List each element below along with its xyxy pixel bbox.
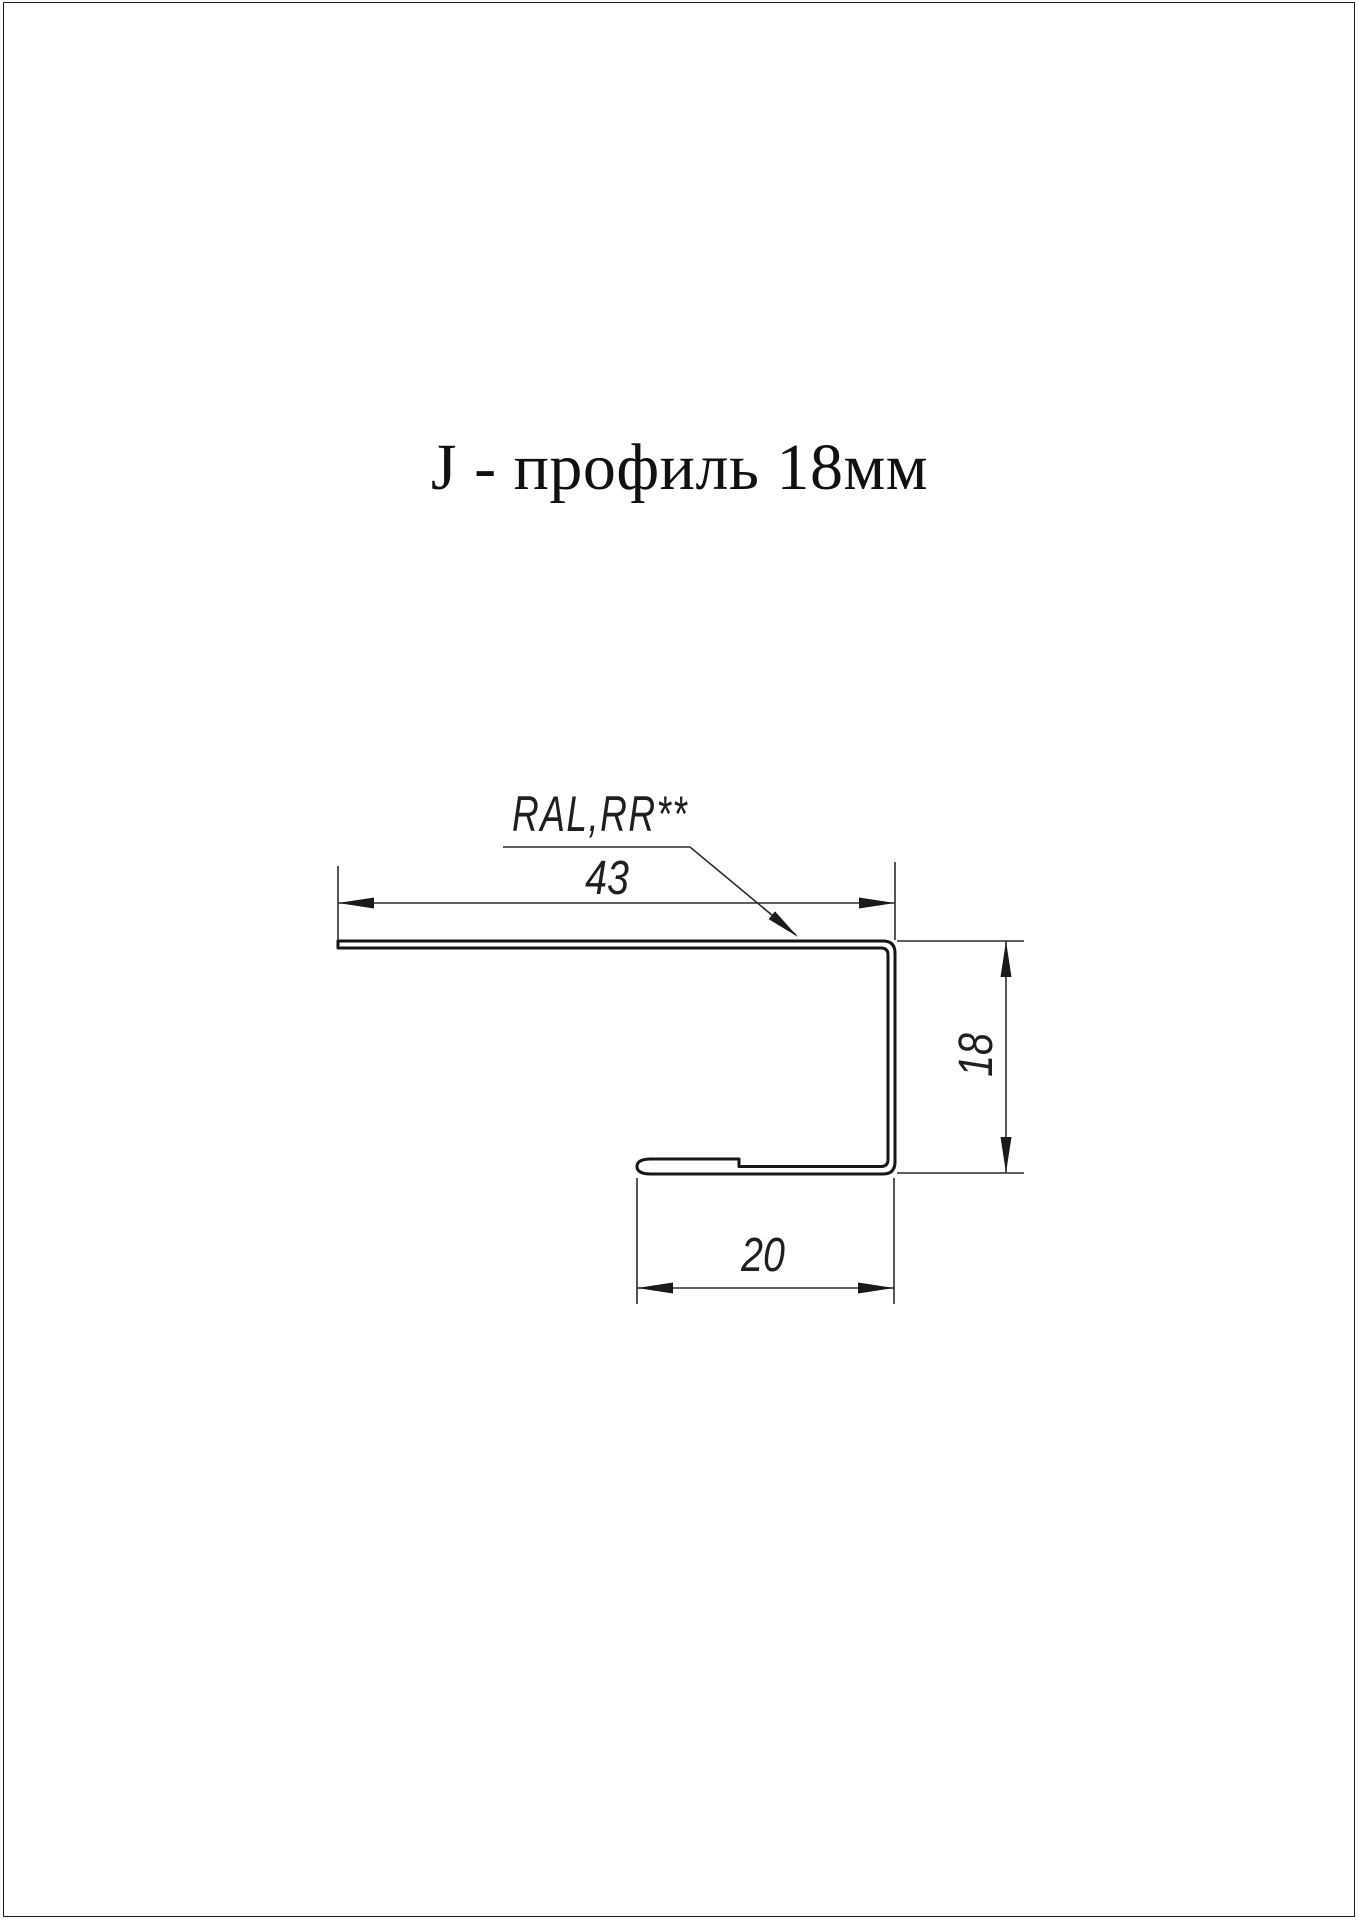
drawing-sheet: J - профиль 18мм 43 RAL,RR** 18 bbox=[0, 0, 1359, 1920]
profile-outline bbox=[338, 941, 895, 1174]
dimension-arrow bbox=[858, 1283, 894, 1294]
dimension-arrow bbox=[859, 898, 895, 909]
profile-drawing: 43 RAL,RR** 18 20 bbox=[0, 0, 1359, 1920]
dim-label-lip-width: 20 bbox=[740, 1228, 785, 1282]
dim-label-height: 18 bbox=[949, 1033, 1003, 1077]
dimension-arrow bbox=[637, 1283, 673, 1294]
dimension-arrow bbox=[1001, 1137, 1012, 1173]
coating-label: RAL,RR** bbox=[512, 787, 688, 843]
dim-label-flange-width: 43 bbox=[585, 851, 629, 905]
dimension-arrow bbox=[338, 898, 374, 909]
dimension-arrow bbox=[1001, 941, 1012, 977]
leader-line bbox=[503, 847, 796, 935]
leader-arrow bbox=[769, 911, 802, 940]
